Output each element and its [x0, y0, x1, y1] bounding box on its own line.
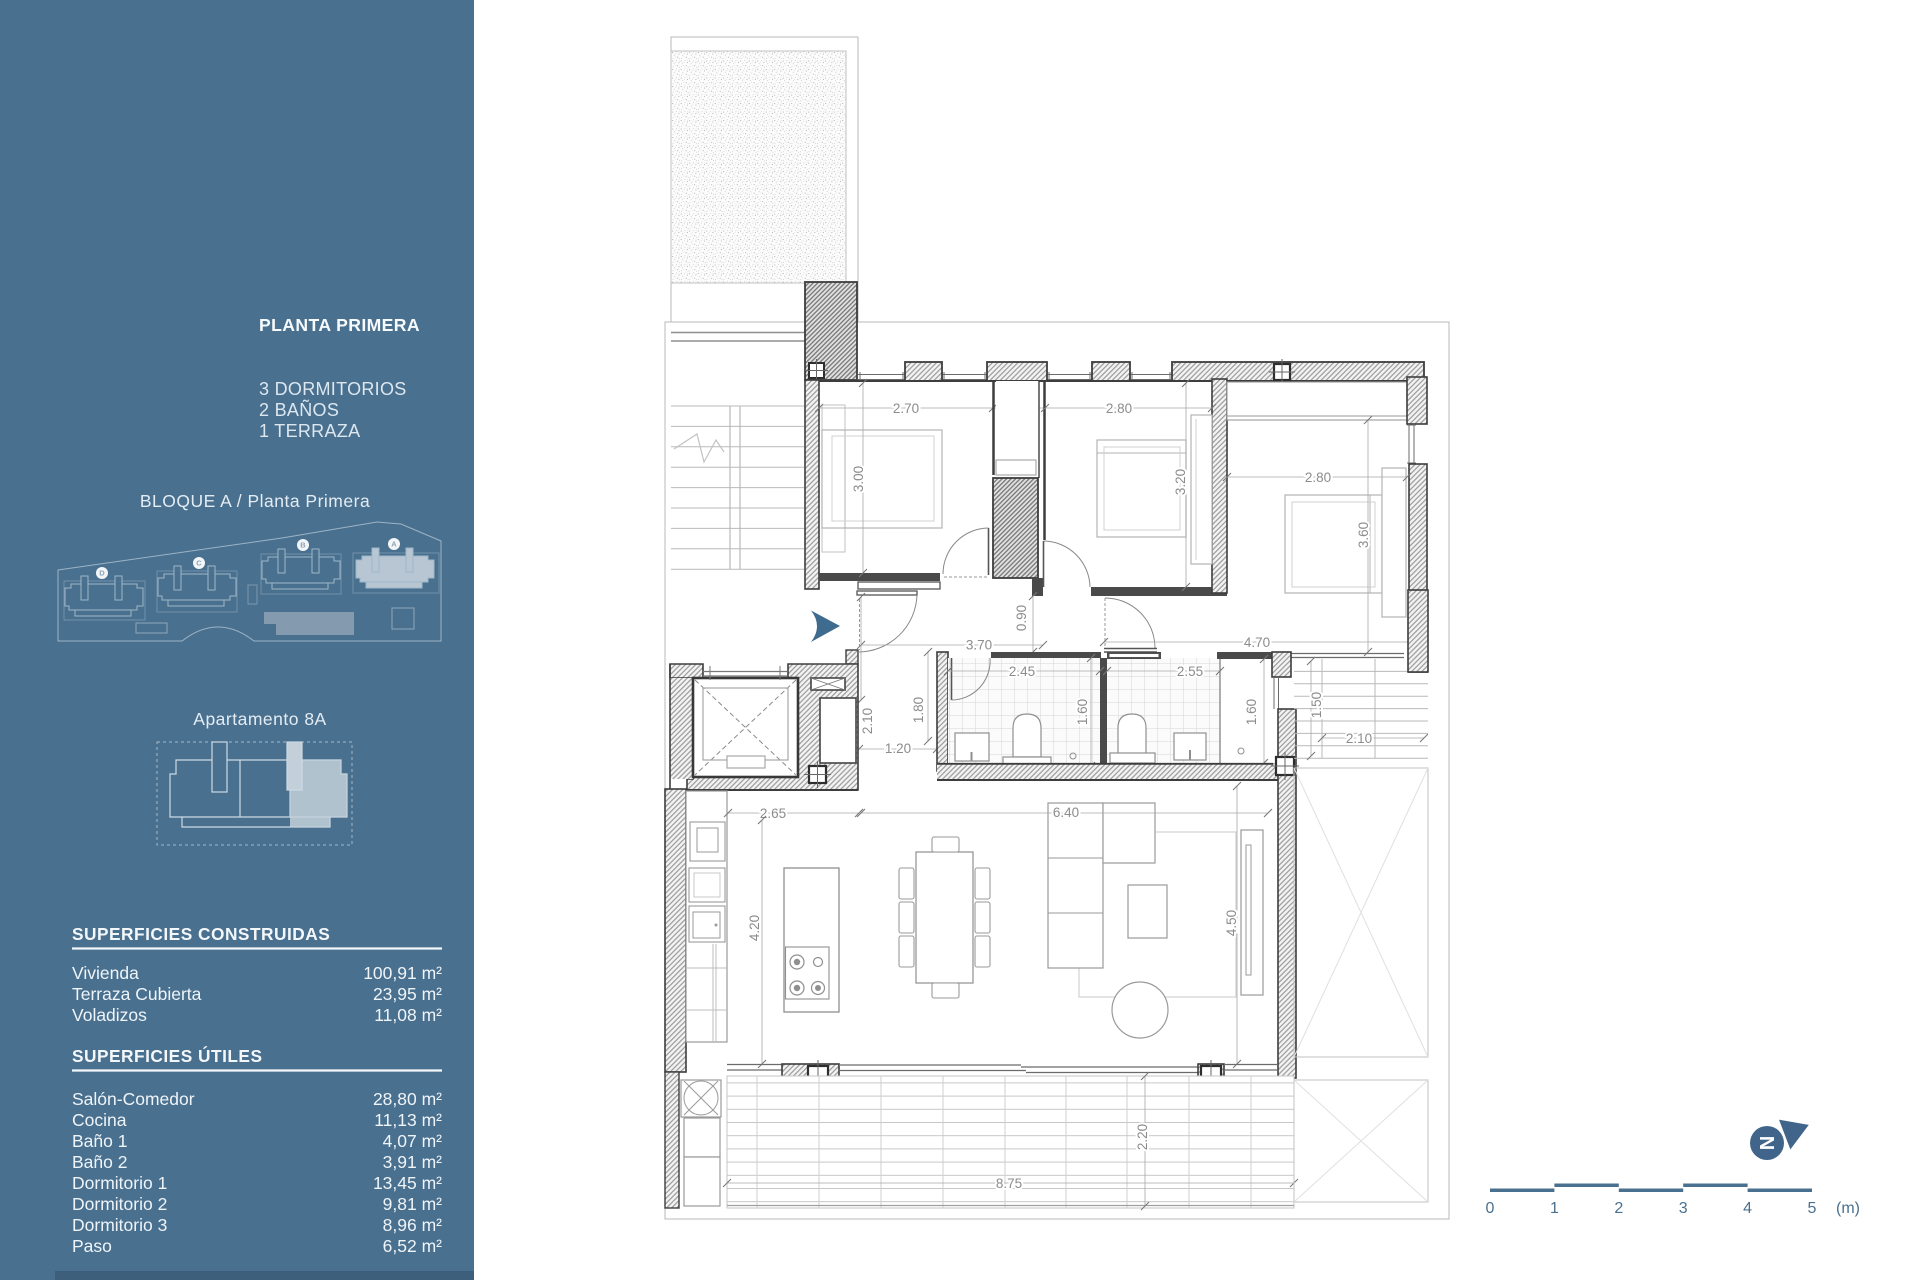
svg-text:23,95 m²: 23,95 m² [373, 984, 442, 1004]
svg-text:4.50: 4.50 [1224, 910, 1239, 936]
svg-text:B: B [300, 541, 306, 550]
svg-text:8.75: 8.75 [996, 1176, 1022, 1191]
svg-text:3 DORMITORIOS: 3 DORMITORIOS [259, 379, 407, 399]
svg-text:Salón-Comedor: Salón-Comedor [72, 1089, 195, 1109]
svg-text:3.00: 3.00 [851, 466, 866, 492]
svg-text:C: C [196, 559, 202, 568]
svg-text:1.50: 1.50 [1309, 692, 1324, 718]
svg-text:Dormitorio 2: Dormitorio 2 [72, 1194, 167, 1214]
svg-text:11,13 m²: 11,13 m² [374, 1110, 442, 1130]
svg-text:11,08 m²: 11,08 m² [374, 1005, 442, 1025]
svg-text:4.20: 4.20 [747, 915, 762, 941]
svg-text:1.20: 1.20 [885, 741, 911, 756]
svg-text:2.20: 2.20 [1135, 1124, 1150, 1150]
svg-text:A: A [391, 540, 397, 549]
svg-text:Baño 1: Baño 1 [72, 1131, 127, 1151]
svg-text:Terraza Cubierta: Terraza Cubierta [72, 984, 202, 1004]
svg-text:4,07 m²: 4,07 m² [383, 1131, 442, 1151]
svg-text:D: D [99, 569, 105, 578]
svg-text:N: N [1755, 1136, 1777, 1150]
svg-text:Dormitorio 1: Dormitorio 1 [72, 1173, 167, 1193]
svg-text:100,91 m²: 100,91 m² [363, 963, 442, 983]
svg-text:2.10: 2.10 [860, 708, 875, 734]
svg-text:Baño 2: Baño 2 [72, 1152, 127, 1172]
svg-text:Voladizos: Voladizos [72, 1005, 147, 1025]
svg-text:1.60: 1.60 [1075, 699, 1090, 725]
svg-text:3,91 m²: 3,91 m² [383, 1152, 442, 1172]
svg-text:(m): (m) [1836, 1200, 1860, 1217]
svg-text:1.80: 1.80 [911, 697, 926, 723]
svg-text:13,45 m²: 13,45 m² [373, 1173, 442, 1193]
svg-text:4: 4 [1743, 1200, 1752, 1217]
svg-text:3.60: 3.60 [1356, 522, 1371, 548]
svg-text:5: 5 [1808, 1200, 1817, 1217]
svg-text:Cocina: Cocina [72, 1110, 127, 1130]
svg-text:0: 0 [1486, 1200, 1495, 1217]
svg-text:2.70: 2.70 [893, 401, 919, 416]
svg-text:4.70: 4.70 [1244, 635, 1270, 650]
svg-text:BLOQUE A / Planta Primera: BLOQUE A / Planta Primera [140, 491, 370, 511]
svg-text:2.55: 2.55 [1177, 664, 1203, 679]
svg-text:3: 3 [1679, 1200, 1688, 1217]
svg-text:1 TERRAZA: 1 TERRAZA [259, 421, 360, 441]
svg-text:2: 2 [1614, 1200, 1623, 1217]
svg-text:Dormitorio 3: Dormitorio 3 [72, 1215, 167, 1235]
svg-text:3.20: 3.20 [1173, 469, 1188, 495]
svg-text:9,81 m²: 9,81 m² [383, 1194, 442, 1214]
svg-text:3.70: 3.70 [966, 638, 992, 653]
svg-text:SUPERFICIES CONSTRUIDAS: SUPERFICIES CONSTRUIDAS [72, 924, 330, 944]
svg-text:6.40: 6.40 [1053, 805, 1079, 820]
svg-text:SUPERFICIES ÚTILES: SUPERFICIES ÚTILES [72, 1046, 262, 1066]
svg-text:2.80: 2.80 [1305, 470, 1331, 485]
svg-text:1: 1 [1550, 1200, 1559, 1217]
svg-text:1.60: 1.60 [1244, 699, 1259, 725]
svg-text:Vivienda: Vivienda [72, 963, 139, 983]
svg-text:6,52 m²: 6,52 m² [383, 1236, 442, 1256]
svg-text:2 BAÑOS: 2 BAÑOS [259, 399, 339, 420]
svg-text:PLANTA PRIMERA: PLANTA PRIMERA [259, 315, 420, 335]
svg-text:Paso: Paso [72, 1236, 112, 1256]
svg-text:8,96 m²: 8,96 m² [383, 1215, 442, 1235]
svg-text:0.90: 0.90 [1014, 605, 1029, 631]
svg-text:2.10: 2.10 [1346, 731, 1372, 746]
svg-text:28,80 m²: 28,80 m² [373, 1089, 442, 1109]
svg-text:2.80: 2.80 [1106, 401, 1132, 416]
svg-text:Apartamento 8A: Apartamento 8A [193, 709, 326, 729]
svg-text:2.45: 2.45 [1009, 664, 1035, 679]
